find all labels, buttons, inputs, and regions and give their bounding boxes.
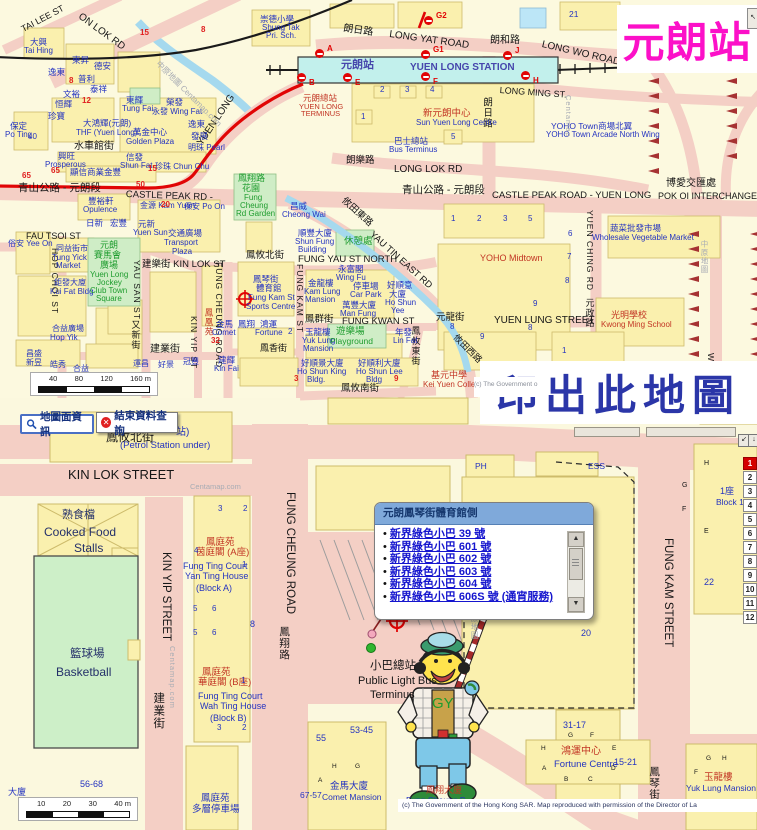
map-label: 鳳攸北街 — [246, 251, 284, 261]
map-label: Fortune Centre — [554, 760, 618, 770]
scale-bar: 4080120160 m — [30, 372, 158, 396]
map-label: 珍珠 Chun Chu — [155, 163, 209, 171]
map-label: 22 — [704, 578, 714, 588]
map-label: 逸東 — [188, 120, 205, 129]
page-number-button[interactable]: 6 — [743, 527, 757, 540]
map-label: 又新街 — [130, 320, 140, 350]
map-label: 博愛交匯處 — [666, 179, 716, 190]
map-label: 元政路 — [584, 298, 594, 328]
map-label: Stalls — [74, 542, 103, 555]
map-label: 朗和路 — [490, 36, 520, 47]
map-label: YUEN CHING RD — [585, 210, 594, 291]
map-label: 3 — [294, 375, 298, 383]
map-label: F — [590, 733, 594, 740]
map-label: 小巴總站 — [370, 660, 416, 672]
mtr-exit-icon — [421, 50, 430, 59]
map-label: 15 — [148, 165, 157, 173]
map-label: YUEN LUNG STREET — [494, 316, 595, 327]
map-label: 建業街 — [150, 345, 180, 356]
map-label: Bldg. — [307, 376, 325, 384]
map-label: 皓秀 — [50, 361, 66, 369]
map-label: Kwong Ming School — [601, 321, 672, 329]
mtr-exit-icon — [521, 71, 530, 80]
map-label: 青山公路 - 元朗段 — [402, 185, 485, 196]
map-label: G — [706, 756, 711, 763]
map-label: 冠豐 — [183, 358, 199, 366]
mtr-exit-label: G1 — [433, 45, 444, 54]
map-label: 保安 Po On — [184, 203, 225, 211]
mtr-exit-icon — [424, 16, 433, 25]
map-label: 鳳琴街 — [648, 766, 659, 801]
mtr-exit-icon — [343, 73, 352, 82]
route-list-item: •新界綠色小巴 604 號 — [383, 578, 593, 591]
page-number-button[interactable]: 1 — [743, 457, 757, 470]
route-link[interactable]: 新界綠色小巴 606S 號 (通宵服務) — [390, 591, 553, 603]
bullet-icon: • — [383, 566, 387, 578]
map-label: 榮發 — [166, 98, 183, 107]
map-label: 2 — [288, 328, 292, 336]
map-label: 恒輝 — [55, 100, 72, 109]
map-label: Lin Fat — [393, 337, 417, 345]
page-selector: 123456789101112 — [743, 457, 757, 625]
map-label: Opulence — [83, 206, 117, 214]
toolbar-sliver — [574, 427, 640, 437]
page-number-button[interactable]: 7 — [743, 541, 757, 554]
map-label: Public Light Bus — [358, 676, 437, 688]
map-label: 3 — [218, 505, 222, 513]
map-label: 5 — [451, 133, 455, 141]
map-label: Sun Yuen Long Centre — [416, 119, 497, 127]
map-label: Tung Fai — [122, 105, 153, 113]
map-label: Plaza — [172, 248, 192, 256]
page-number-button[interactable]: 10 — [743, 583, 757, 596]
map-label: KIN LOK STREET — [68, 468, 174, 482]
map-label: 1座 — [720, 487, 734, 497]
route-link[interactable]: 新界綠色小巴 603 號 — [390, 566, 491, 578]
map-label: G — [568, 733, 573, 740]
map-label: 發展 — [191, 132, 208, 141]
map-label: 玉龍樓 — [704, 773, 733, 783]
map-label: 8 — [69, 77, 73, 85]
route-list-item: •新界綠色小巴 606S 號 (通宵服務) — [383, 591, 593, 604]
mtr-exit-icon — [503, 51, 512, 60]
map-label: 15 — [140, 29, 149, 37]
map-label: Yee — [391, 307, 405, 315]
map-label: 運昌 — [133, 360, 149, 368]
map-label: 65 — [22, 172, 31, 180]
map-label: 宏豐 — [110, 219, 127, 228]
route-link[interactable]: 新界綠色小巴 39 號 — [390, 528, 485, 540]
route-list-item: •新界綠色小巴 601 號 — [383, 541, 593, 554]
bullet-icon: • — [383, 591, 387, 603]
map-label: 金豐 — [104, 168, 121, 177]
scale-tick: 20 — [63, 799, 71, 808]
map-label: FUNG KAM STREET — [662, 538, 674, 647]
map-label: 53-45 — [350, 726, 373, 736]
map-label: 50 — [136, 181, 145, 189]
map-label: 金馬大廈 — [330, 782, 368, 792]
map-label: 2 — [477, 215, 481, 223]
route-list: •新界綠色小巴 39 號•新界綠色小巴 601 號•新界綠色小巴 602 號•新… — [375, 528, 593, 604]
map-application: TAI LEE STON LOK RD朗日路LONG YAT ROAD朗和路LO… — [0, 0, 757, 830]
map-label: 56-68 — [80, 780, 103, 790]
scale-bar: 10203040 m — [18, 797, 138, 821]
map-label: FUNG KAM ST — [295, 264, 304, 333]
map-label: FUNG CHEUNG ROAD — [214, 262, 223, 368]
map-label: 21 — [569, 10, 578, 19]
map-label: 休憩處 — [344, 237, 373, 247]
station-title-overlay: 元朗站 — [617, 5, 757, 73]
page-number-button[interactable]: 12 — [743, 611, 757, 624]
map-label: 9 — [480, 333, 484, 341]
map-label: 普利 — [78, 75, 95, 84]
map-label: 逸東 — [48, 68, 65, 77]
map-label: Cheong Wai — [282, 211, 326, 219]
map-label: Centamap — [564, 95, 572, 138]
end-query-button[interactable]: ✕ 結束資料查詢 — [96, 412, 178, 433]
map-label: Man Fung — [340, 310, 376, 318]
map-label: Basketball — [56, 666, 111, 679]
copyright-note: (c) The Government o — [474, 377, 548, 397]
map-label: Mansion — [305, 296, 335, 304]
map-label: Rd Garden — [236, 210, 275, 218]
map-label: 20 — [581, 629, 591, 639]
route-list-item: •新界綠色小巴 39 號 — [383, 528, 593, 541]
map-label: 建業街 — [152, 692, 164, 730]
map-label: Bus Terminus — [389, 146, 437, 154]
map-label: 8 — [450, 323, 454, 331]
map-label: YOHO Midtown — [480, 254, 543, 264]
map-label: 日新 — [86, 219, 103, 228]
map-label: 5 — [193, 629, 197, 637]
map-label: 青山公路 - 元朗段 — [18, 183, 101, 194]
map-label: 31-17 — [563, 721, 586, 731]
mtr-exit-label: F — [433, 77, 438, 86]
map-label: 1 — [241, 677, 245, 685]
scroll-up-button[interactable]: ▲ — [568, 532, 584, 547]
map-label: 67-57 — [300, 791, 322, 800]
map-label: 6 — [568, 230, 572, 238]
mtr-exit-label: E — [355, 78, 360, 87]
mtr-exit-icon — [297, 73, 306, 82]
map-label: G — [355, 764, 360, 771]
page-number-button[interactable]: 8 — [743, 555, 757, 568]
scale-tick: 40 — [49, 374, 57, 383]
map-label: 建樂街 KIN LOK ST — [142, 260, 225, 270]
popup-scrollbar[interactable]: ▲ ▼ — [567, 531, 585, 613]
map-label: 55 — [316, 734, 326, 744]
map-label: D — [611, 766, 616, 773]
map-label: 6 — [212, 605, 216, 613]
route-query-popup: 元朗鳳琴街體育館側 •新界綠色小巴 39 號•新界綠色小巴 601 號•新界綠色… — [374, 502, 594, 620]
map-label: Yuk Lung Mansion — [686, 784, 756, 793]
map-label: 2 — [380, 86, 384, 94]
map-info-label: 地圖面資訊 — [40, 409, 88, 439]
map-label: Hop Yik — [50, 334, 78, 342]
bullet-icon: • — [383, 541, 387, 553]
map-label: 文裕 — [63, 90, 80, 99]
map-label: Yuen Sun — [133, 229, 168, 237]
mtr-exit-icon — [421, 72, 430, 81]
map-label: Kin Fai — [214, 365, 239, 373]
scroll-down-button[interactable]: ▼ — [568, 597, 584, 612]
map-label: 15-21 — [614, 758, 637, 768]
mtr-exit-label: G2 — [436, 11, 447, 20]
map-label: Wah Ting House — [200, 702, 266, 712]
mtr-exit-label: A — [327, 44, 333, 53]
location-dot-icon — [367, 644, 376, 653]
map-label: B — [564, 777, 568, 784]
page-number-button[interactable]: 5 — [743, 513, 757, 526]
map-label: Block 1 — [716, 498, 744, 507]
map-label: 元朗站 — [341, 60, 374, 72]
map-label: A — [542, 766, 546, 773]
map-label: 5 — [528, 215, 532, 223]
map-label: Comet Mansion — [322, 793, 382, 802]
map-label: Mansion — [303, 345, 333, 353]
map-label: (Block A) — [196, 584, 232, 594]
map-label: 泰祥 — [90, 85, 107, 94]
map-label: KIN YIP STREET — [160, 552, 172, 641]
map-label: Square — [96, 295, 122, 303]
map-label: 新昱 — [26, 359, 42, 367]
map-label: 1 — [242, 561, 246, 569]
map-label: Tai Hing — [24, 47, 53, 55]
map-label: 明珠 Pearl — [188, 144, 225, 152]
map-label: 8 — [201, 26, 205, 34]
map-label: Building — [298, 246, 326, 254]
map-label: 4 — [430, 86, 434, 94]
map-label: F — [694, 770, 698, 777]
map-label: C — [588, 777, 593, 784]
map-label: YAU SAN ST — [132, 260, 141, 320]
mtr-exit-label: B — [309, 78, 315, 87]
map-label: G — [682, 482, 687, 489]
map-label: 20 — [161, 201, 170, 209]
page-number-button[interactable]: 9 — [743, 569, 757, 582]
map-label: Kui Fat Bldg — [50, 288, 94, 296]
map-label: E — [612, 746, 616, 753]
map-label: 鳳庭苑 — [201, 794, 230, 804]
map-label: 好景 — [158, 361, 174, 369]
map-label: 8 — [528, 324, 532, 332]
map-label: 站) — [176, 428, 189, 439]
map-label: (Petrol Station under) — [120, 441, 210, 451]
bullet-icon: • — [383, 553, 387, 565]
station-title-text: 元朗站 — [622, 9, 751, 70]
map-label: 8 — [565, 277, 569, 285]
route-link[interactable]: 新界綠色小巴 604 號 — [390, 578, 491, 590]
map-label: 體育館 — [256, 284, 282, 293]
copyright-note: (c) The Government of the Hong Kong SAR.… — [398, 799, 757, 812]
map-label: 8 — [250, 620, 255, 630]
map-label: 顯信商業 — [70, 168, 104, 177]
page-number-button[interactable]: 2 — [743, 471, 757, 484]
map-label: 5 — [193, 605, 197, 613]
map-label: 2 — [243, 505, 247, 513]
map-label: 鳳翔路 — [278, 626, 289, 661]
map-label: 蔬菜批發市場 — [610, 224, 661, 233]
map-label: 水車館街 — [74, 142, 114, 153]
map-label: 鳳群街 — [305, 315, 334, 325]
map-label: FUNG CHEUNG ROAD — [284, 492, 296, 614]
map-label: E — [704, 528, 709, 535]
map-label: ESS — [588, 462, 605, 471]
corner-arrow-button[interactable]: ↖ — [747, 8, 757, 29]
map-label: 4 — [194, 547, 198, 555]
map-label: Fortune — [255, 329, 283, 337]
map-label: A — [318, 778, 322, 785]
map-label: Playground — [330, 337, 373, 346]
scale-tick: 160 m — [130, 374, 151, 383]
map-label: 永發 Wing Fat — [152, 108, 202, 116]
route-link[interactable]: 新界綠色小巴 602 號 — [390, 553, 491, 565]
map-label: 茵庭閣 (A座) — [196, 548, 249, 558]
map-label: 中原地圖 — [700, 240, 708, 274]
map-label: Car Park — [350, 291, 382, 299]
map-label: H — [541, 746, 546, 753]
map-label: 鳳翔 — [238, 320, 255, 329]
map-label: 珍寶 — [48, 112, 65, 121]
popup-title: 元朗鳳琴街體育館側 — [375, 503, 593, 525]
close-icon: ✕ — [101, 417, 111, 428]
map-label: 3 — [503, 215, 507, 223]
map-label: Centamap.com — [190, 483, 241, 491]
map-label: 俗安 Yee On — [8, 240, 53, 248]
map-label: 40 — [28, 133, 37, 141]
map-label: 籃球場 — [70, 648, 105, 660]
map-label: 6 — [212, 629, 216, 637]
map-label: H — [332, 764, 337, 771]
map-info-button[interactable]: 地圖面資訊 — [20, 414, 94, 434]
map-label: 9 — [533, 300, 537, 308]
mtr-exit-label: H — [533, 76, 539, 85]
map-label: 1 — [451, 215, 455, 223]
map-label: 12 — [82, 97, 91, 105]
route-link[interactable]: 新界綠色小巴 601 號 — [390, 541, 491, 553]
map-label: PH — [475, 462, 487, 471]
map-label: Pri. Sch. — [266, 32, 296, 40]
map-label: 1 — [361, 113, 365, 121]
scale-tick: 30 — [89, 799, 97, 808]
map-label: 3 — [217, 724, 221, 732]
map-label: F — [682, 506, 686, 513]
map-label: 9 — [394, 375, 398, 383]
map-label: 朗樂路 — [346, 156, 375, 166]
magnifier-icon — [26, 418, 37, 430]
scale-tick: 80 — [75, 374, 83, 383]
map-label: 7 — [567, 253, 571, 261]
map-label: 東昇 — [72, 56, 89, 65]
mtr-exit-label: J — [515, 46, 519, 55]
page-number-button[interactable]: 4 — [743, 499, 757, 512]
map-label: Terminus — [370, 690, 415, 702]
map-label: 多層停車場 — [192, 805, 240, 815]
map-label: GY — [432, 696, 454, 712]
route-list-item: •新界綠色小巴 603 號 — [383, 566, 593, 579]
route-list-item: •新界綠色小巴 602 號 — [383, 553, 593, 566]
map-label: TERMINUS — [301, 110, 340, 118]
bullet-icon: • — [383, 528, 387, 540]
map-label: 大鴻輝(元朗) — [83, 119, 131, 128]
toolbar-sliver — [646, 427, 736, 437]
map-label: Yan Ting House — [185, 572, 248, 582]
map-label: Wholesale Vegetable Market — [592, 234, 694, 242]
scale-tick: 10 — [37, 799, 45, 808]
scale-tick: 40 m — [114, 799, 131, 808]
map-label: Bldg — [366, 376, 382, 384]
map-label: Market — [56, 262, 80, 270]
page-number-button[interactable]: 3 — [743, 485, 757, 498]
map-label: 2 — [242, 724, 246, 732]
page-number-button[interactable]: 11 — [743, 597, 757, 610]
map-label: 熟食檔 — [62, 510, 95, 522]
map-label: POK OI INTERCHANGE — [658, 192, 757, 202]
map-label: 鳳攸南街 — [341, 384, 379, 394]
map-label: 德安 — [94, 62, 111, 71]
map-label: 1 — [562, 347, 566, 355]
mtr-exit-icon — [315, 49, 324, 58]
map-label: 65 — [51, 167, 60, 175]
map-label: 交通廣場 — [168, 229, 202, 238]
map-label: 32 — [211, 337, 220, 345]
map-label: 鳳香街 — [260, 344, 287, 354]
map-label: 鴻運中心 — [561, 747, 601, 758]
map-label: Centamap.com — [168, 646, 176, 709]
map-label: CASTLE PEAK ROAD - YUEN LONG — [492, 191, 651, 201]
map-label: Sports Centre — [246, 303, 295, 311]
bullet-icon: • — [383, 578, 387, 590]
scrollbar-thumb[interactable] — [569, 548, 583, 580]
pan-arrow-button[interactable]: ↓ — [748, 434, 757, 447]
map-label: 3 — [405, 86, 409, 94]
map-label: Cooked Food — [44, 526, 116, 539]
map-label: H — [722, 756, 727, 763]
map-label: 萬金中心 — [133, 128, 167, 137]
map-label: H — [704, 460, 709, 467]
end-query-label: 結束資料查詢 — [114, 408, 173, 438]
map-label: LONG LOK RD — [394, 165, 462, 176]
scale-tick: 120 — [100, 374, 113, 383]
map-label: Golden Plaza — [126, 138, 174, 146]
